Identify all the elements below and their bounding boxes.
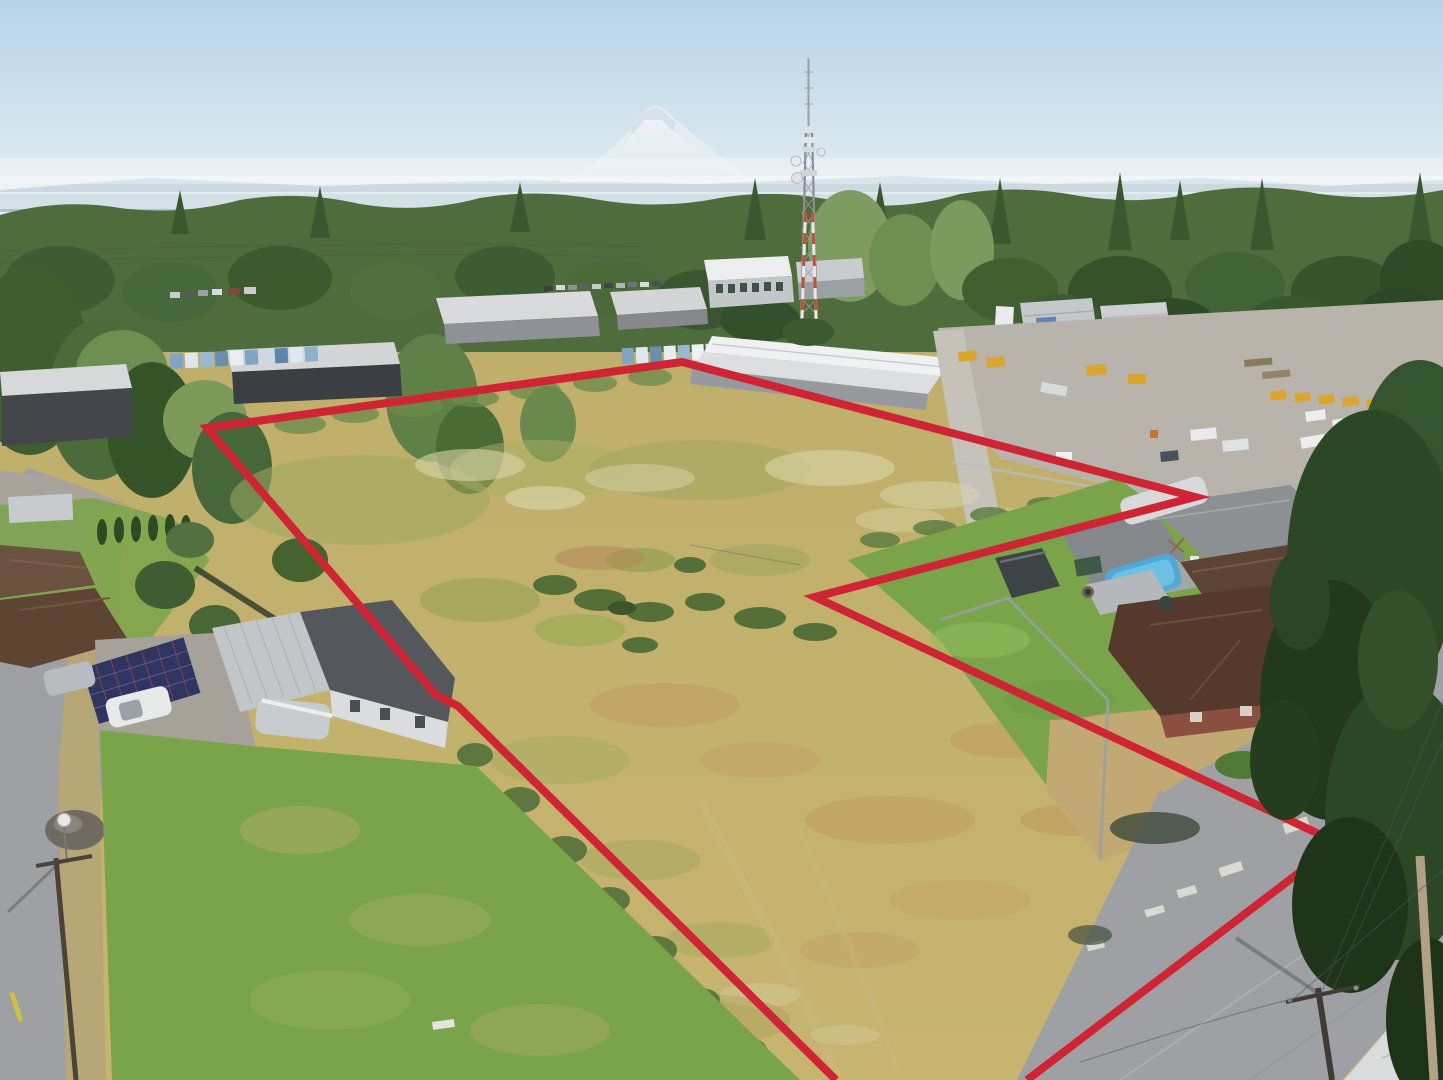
flat-gray-building	[8, 494, 73, 523]
bramble-patch	[1110, 812, 1200, 844]
trampoline	[1158, 596, 1174, 612]
aerial-photo-stage	[0, 0, 1443, 1080]
silver-trailer	[254, 697, 331, 741]
tower-dish	[791, 156, 801, 166]
aerial-photo	[0, 0, 1443, 1080]
tower-base-trees	[782, 318, 834, 346]
warehouse-left-wall	[2, 388, 134, 446]
street-sign	[57, 813, 71, 827]
